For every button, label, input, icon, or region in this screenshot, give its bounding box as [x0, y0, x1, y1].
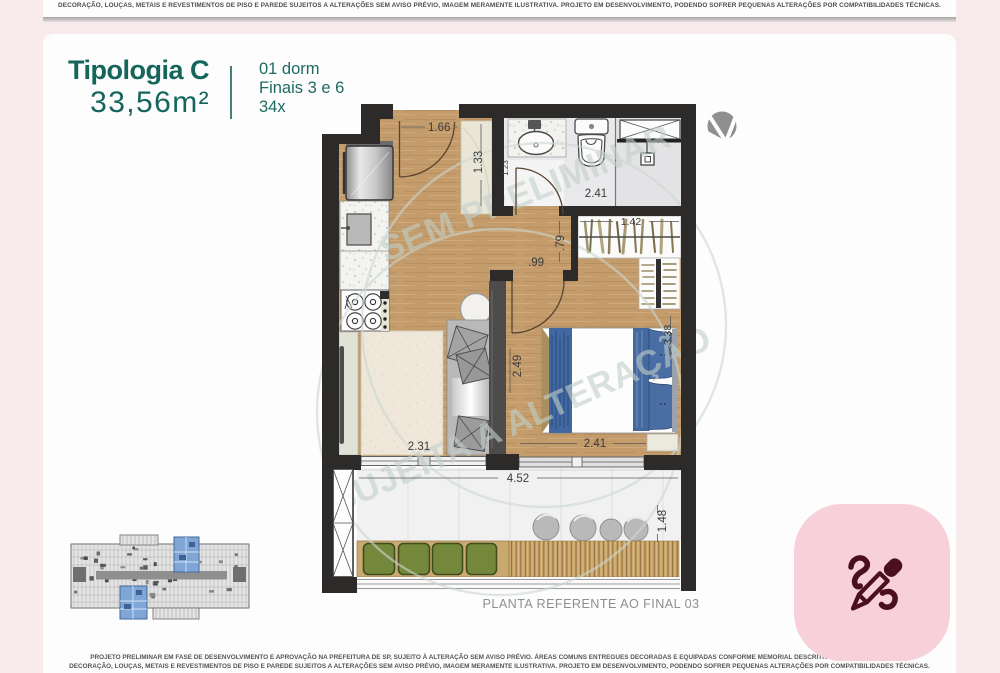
svg-text:1.48: 1.48 — [657, 510, 669, 532]
svg-text:2.31: 2.31 — [408, 441, 430, 453]
svg-text:3.38: 3.38 — [662, 325, 674, 346]
svg-text:2.49: 2.49 — [512, 355, 524, 377]
svg-text:1.33: 1.33 — [473, 151, 485, 173]
svg-text:.79: .79 — [555, 235, 567, 251]
svg-text:4.52: 4.52 — [507, 473, 529, 485]
svg-text:2.41: 2.41 — [584, 438, 606, 450]
svg-text:1.42: 1.42 — [621, 216, 642, 228]
svg-text:.99: .99 — [528, 257, 544, 269]
svg-text:1.23: 1.23 — [501, 160, 510, 176]
svg-text:2.41: 2.41 — [585, 188, 607, 200]
svg-text:PLANTA REFERENTE AO FINAL 03: PLANTA REFERENTE AO FINAL 03 — [483, 597, 700, 611]
svg-text:1.66: 1.66 — [428, 122, 450, 134]
